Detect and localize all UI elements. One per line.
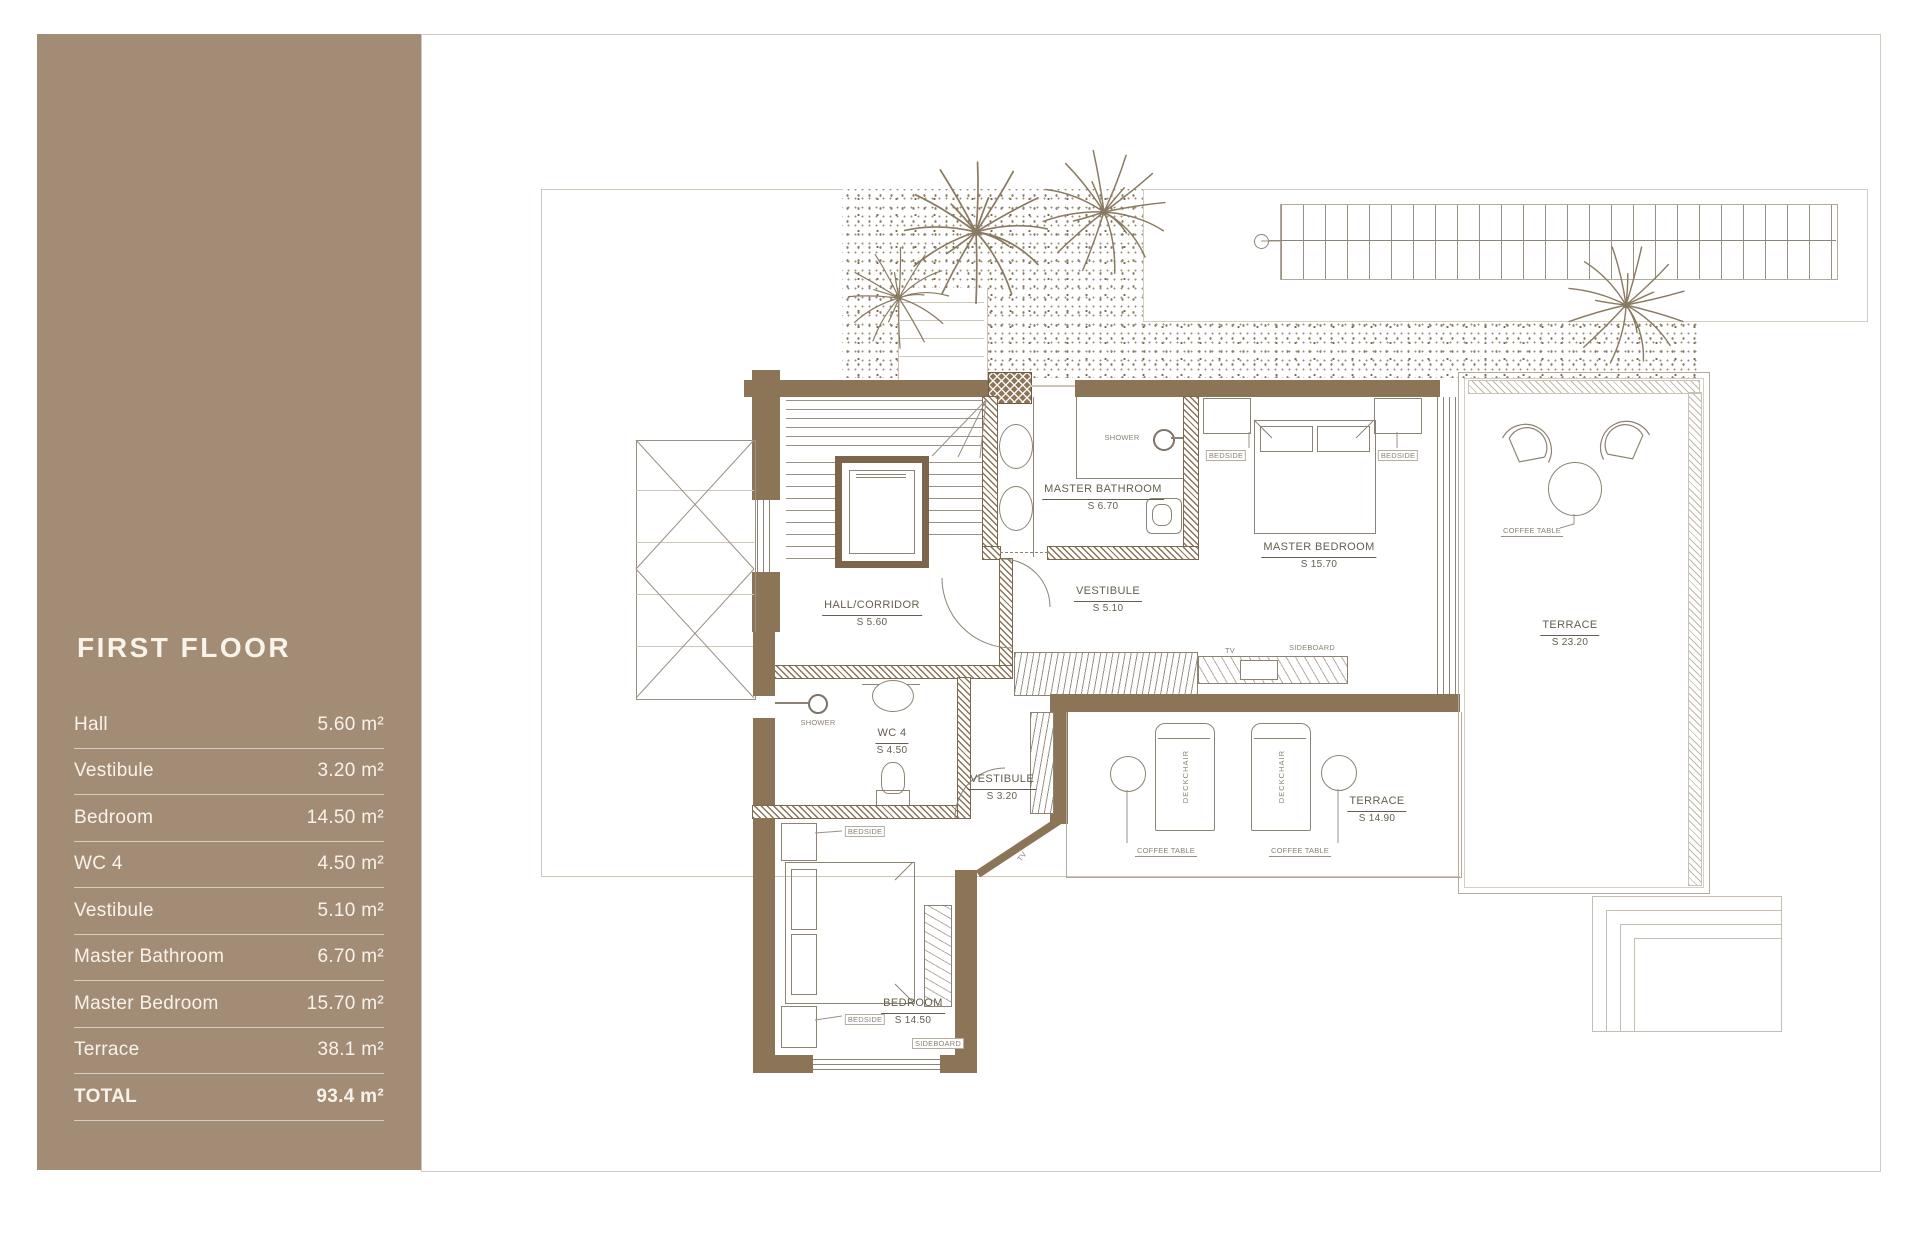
wall-segment xyxy=(753,632,775,696)
deckchair-headrest xyxy=(1158,738,1210,739)
pillow xyxy=(1260,426,1313,452)
row-label: Master Bedroom xyxy=(74,993,219,1015)
glazing-line xyxy=(813,1059,940,1060)
shower-head-icon xyxy=(808,694,828,714)
glazing-line xyxy=(813,1069,940,1070)
skylight-void xyxy=(636,440,756,700)
deckchair-label: DECKCHAIR xyxy=(1277,750,1286,803)
table-row: Master Bedroom15.70 m² xyxy=(74,981,384,1028)
row-value: 3.20 m² xyxy=(317,760,384,782)
table-row: Bedroom14.50 m² xyxy=(74,795,384,842)
bedside-table xyxy=(1203,398,1251,434)
shower-screen xyxy=(1076,478,1186,479)
stair-flight xyxy=(786,400,986,454)
wall-segment xyxy=(955,870,977,1062)
skylight-rail xyxy=(636,542,754,543)
row-value: 6.70 m² xyxy=(317,946,384,968)
toilet-bowl xyxy=(881,762,905,794)
shower-label: SHOWER xyxy=(1105,433,1140,442)
row-value: 14.50 m² xyxy=(307,807,384,829)
bedside-label: BEDSIDE xyxy=(1378,450,1418,461)
table-row: WC 44.50 m² xyxy=(74,842,384,889)
sink xyxy=(872,680,914,712)
room-label-hall: HALL/CORRIDOR S 5.60 xyxy=(822,598,922,630)
row-label: Master Bathroom xyxy=(74,946,224,968)
wall-segment xyxy=(752,370,780,500)
room-label-master-bathroom: MASTER BATHROOM S 6.70 xyxy=(1042,482,1164,514)
stair-flight xyxy=(929,462,985,546)
glazing-line xyxy=(769,500,770,572)
row-value: 93.4 m² xyxy=(316,1086,384,1108)
wall-segment xyxy=(752,572,780,632)
table-row: Hall5.60 m² xyxy=(74,702,384,749)
step-line xyxy=(900,338,984,339)
sideboard-label: SIDEBOARD xyxy=(1289,643,1335,652)
step-line xyxy=(900,320,984,321)
stair-flight xyxy=(786,462,835,562)
coffee-table xyxy=(1110,756,1146,792)
room-label-wc4: WC 4 S 4.50 xyxy=(875,726,908,758)
boundary-line xyxy=(541,189,842,190)
boundary-line xyxy=(541,189,542,877)
wall-segment xyxy=(753,1055,813,1073)
tv-unit xyxy=(1240,660,1278,680)
skylight-rail xyxy=(636,594,754,595)
wardrobe xyxy=(1014,652,1198,696)
row-label: Terrace xyxy=(74,1039,139,1061)
row-value: 5.60 m² xyxy=(317,714,384,736)
glazing-line xyxy=(1443,397,1444,694)
skylight-rail xyxy=(636,646,754,647)
bedside-table xyxy=(781,823,817,861)
floor-title: FIRST FLOOR xyxy=(77,632,291,664)
shower-screen xyxy=(1076,397,1077,478)
shower-label: SHOWER xyxy=(801,718,836,727)
garden-steps xyxy=(1634,938,1782,1032)
bathroom-bedroom-wall xyxy=(1184,397,1198,557)
bedside-label: BEDSIDE xyxy=(845,1014,885,1025)
hall-wc-wall xyxy=(775,666,1012,678)
planter-strip xyxy=(1688,392,1702,886)
glazing-line xyxy=(1455,397,1456,694)
row-label: Vestibule xyxy=(74,760,154,782)
deckchair-label: DECKCHAIR xyxy=(1181,750,1190,803)
glazing-line xyxy=(757,500,758,572)
glazing-line xyxy=(1437,397,1438,694)
wall-segment xyxy=(940,1055,977,1073)
elevator-door xyxy=(856,474,906,475)
row-value: 4.50 m² xyxy=(317,853,384,875)
summary-panel: FIRST FLOOR Hall5.60 m² Vestibule3.20 m²… xyxy=(37,34,421,1170)
pillow xyxy=(791,869,817,930)
row-value: 5.10 m² xyxy=(317,900,384,922)
pillow xyxy=(1317,426,1370,452)
room-label-vestibule-510: VESTIBULE S 5.10 xyxy=(1074,584,1142,616)
wall-segment xyxy=(1075,380,1440,397)
deckchair-headrest xyxy=(1254,738,1306,739)
room-label-vestibule-320: VESTIBULE S 3.20 xyxy=(968,772,1036,804)
coffee-table xyxy=(1548,462,1602,516)
step-line xyxy=(900,356,984,357)
shower-head-icon xyxy=(1153,429,1175,451)
room-label-terrace-lower: TERRACE S 14.90 xyxy=(1347,794,1406,826)
coffee-table-label: COFFEE TABLE xyxy=(1269,846,1331,857)
vanity-wall xyxy=(983,397,997,557)
wall-segment xyxy=(753,818,775,1062)
deckchair: DECKCHAIR xyxy=(1251,723,1311,831)
room-label-bedroom: BEDROOM S 14.50 xyxy=(881,996,945,1028)
shower-arm xyxy=(775,702,808,704)
bathroom-south-wall xyxy=(983,547,1000,559)
table-row: Master Bathroom6.70 m² xyxy=(74,935,384,982)
exterior-stair-treads xyxy=(1280,204,1838,280)
hall-vestibule-wall xyxy=(1000,559,1012,667)
planter-strip xyxy=(1468,380,1700,394)
bedside-table xyxy=(1374,398,1422,434)
bedside-table xyxy=(781,1006,817,1048)
row-label: WC 4 xyxy=(74,853,123,875)
sink xyxy=(999,486,1033,531)
window-sill xyxy=(1030,385,1075,387)
row-value: 15.70 m² xyxy=(307,993,384,1015)
bedside-label: BEDSIDE xyxy=(845,826,885,837)
vanity-counter-edge xyxy=(1033,397,1034,557)
pillow xyxy=(791,934,817,995)
coffee-table xyxy=(1321,755,1357,791)
row-label: Bedroom xyxy=(74,807,153,829)
bedside-label: BEDSIDE xyxy=(1206,450,1246,461)
skylight-rail xyxy=(636,490,754,491)
glazing-line xyxy=(813,1064,940,1065)
sideboard xyxy=(924,905,952,1007)
row-value: 38.1 m² xyxy=(317,1039,384,1061)
room-label-terrace-upper: TERRACE S 23.20 xyxy=(1540,618,1599,650)
sideboard-label: SIDEBOARD xyxy=(912,1038,964,1049)
coffee-table-label: COFFEE TABLE xyxy=(1501,526,1563,537)
elevator-door xyxy=(856,477,906,478)
area-table: Hall5.60 m² Vestibule3.20 m² Bedroom14.5… xyxy=(74,702,384,1121)
room-label-master-bedroom: MASTER BEDROOM S 15.70 xyxy=(1261,540,1376,572)
page: FIRST FLOOR Hall5.60 m² Vestibule3.20 m²… xyxy=(0,0,1920,1240)
wc-bedroom-wall xyxy=(753,806,966,818)
table-row-total: TOTAL93.4 m² xyxy=(74,1074,384,1121)
row-label: TOTAL xyxy=(74,1086,137,1108)
table-row: Vestibule5.10 m² xyxy=(74,888,384,935)
tv-label: TV xyxy=(1225,646,1235,655)
wall-segment xyxy=(753,718,775,818)
step-line xyxy=(900,302,984,303)
stair-newel-post xyxy=(1254,234,1269,249)
wall-segment xyxy=(744,380,988,397)
sink xyxy=(999,424,1033,469)
coffee-table-label: COFFEE TABLE xyxy=(1135,846,1197,857)
row-label: Vestibule xyxy=(74,900,154,922)
table-row: Terrace38.1 m² xyxy=(74,1028,384,1075)
elevator-car xyxy=(849,470,915,554)
door-threshold xyxy=(1000,552,1048,553)
glazing-line xyxy=(763,500,764,572)
deckchair: DECKCHAIR xyxy=(1155,723,1215,831)
wall-segment xyxy=(1050,694,1460,712)
glazing-line xyxy=(1449,397,1450,694)
stair-handrail-line xyxy=(1268,240,1836,241)
row-label: Hall xyxy=(74,714,108,736)
bathroom-south-wall xyxy=(1048,547,1198,559)
table-row: Vestibule3.20 m² xyxy=(74,749,384,796)
